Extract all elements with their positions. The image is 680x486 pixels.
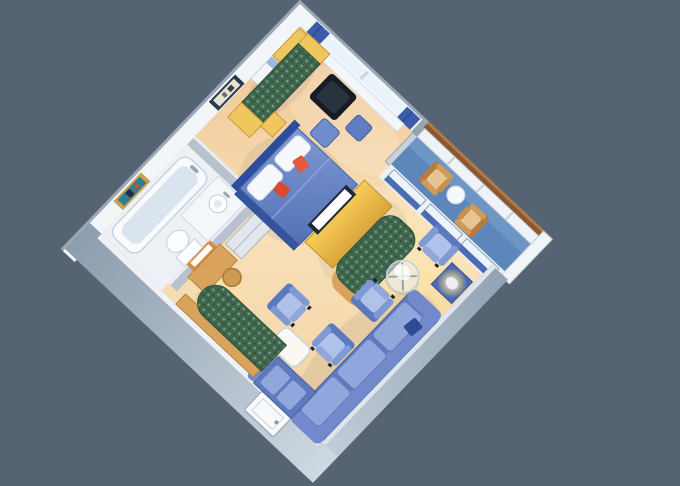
floor-plan-svg <box>0 0 680 486</box>
floor-plan-canvas <box>0 0 680 486</box>
